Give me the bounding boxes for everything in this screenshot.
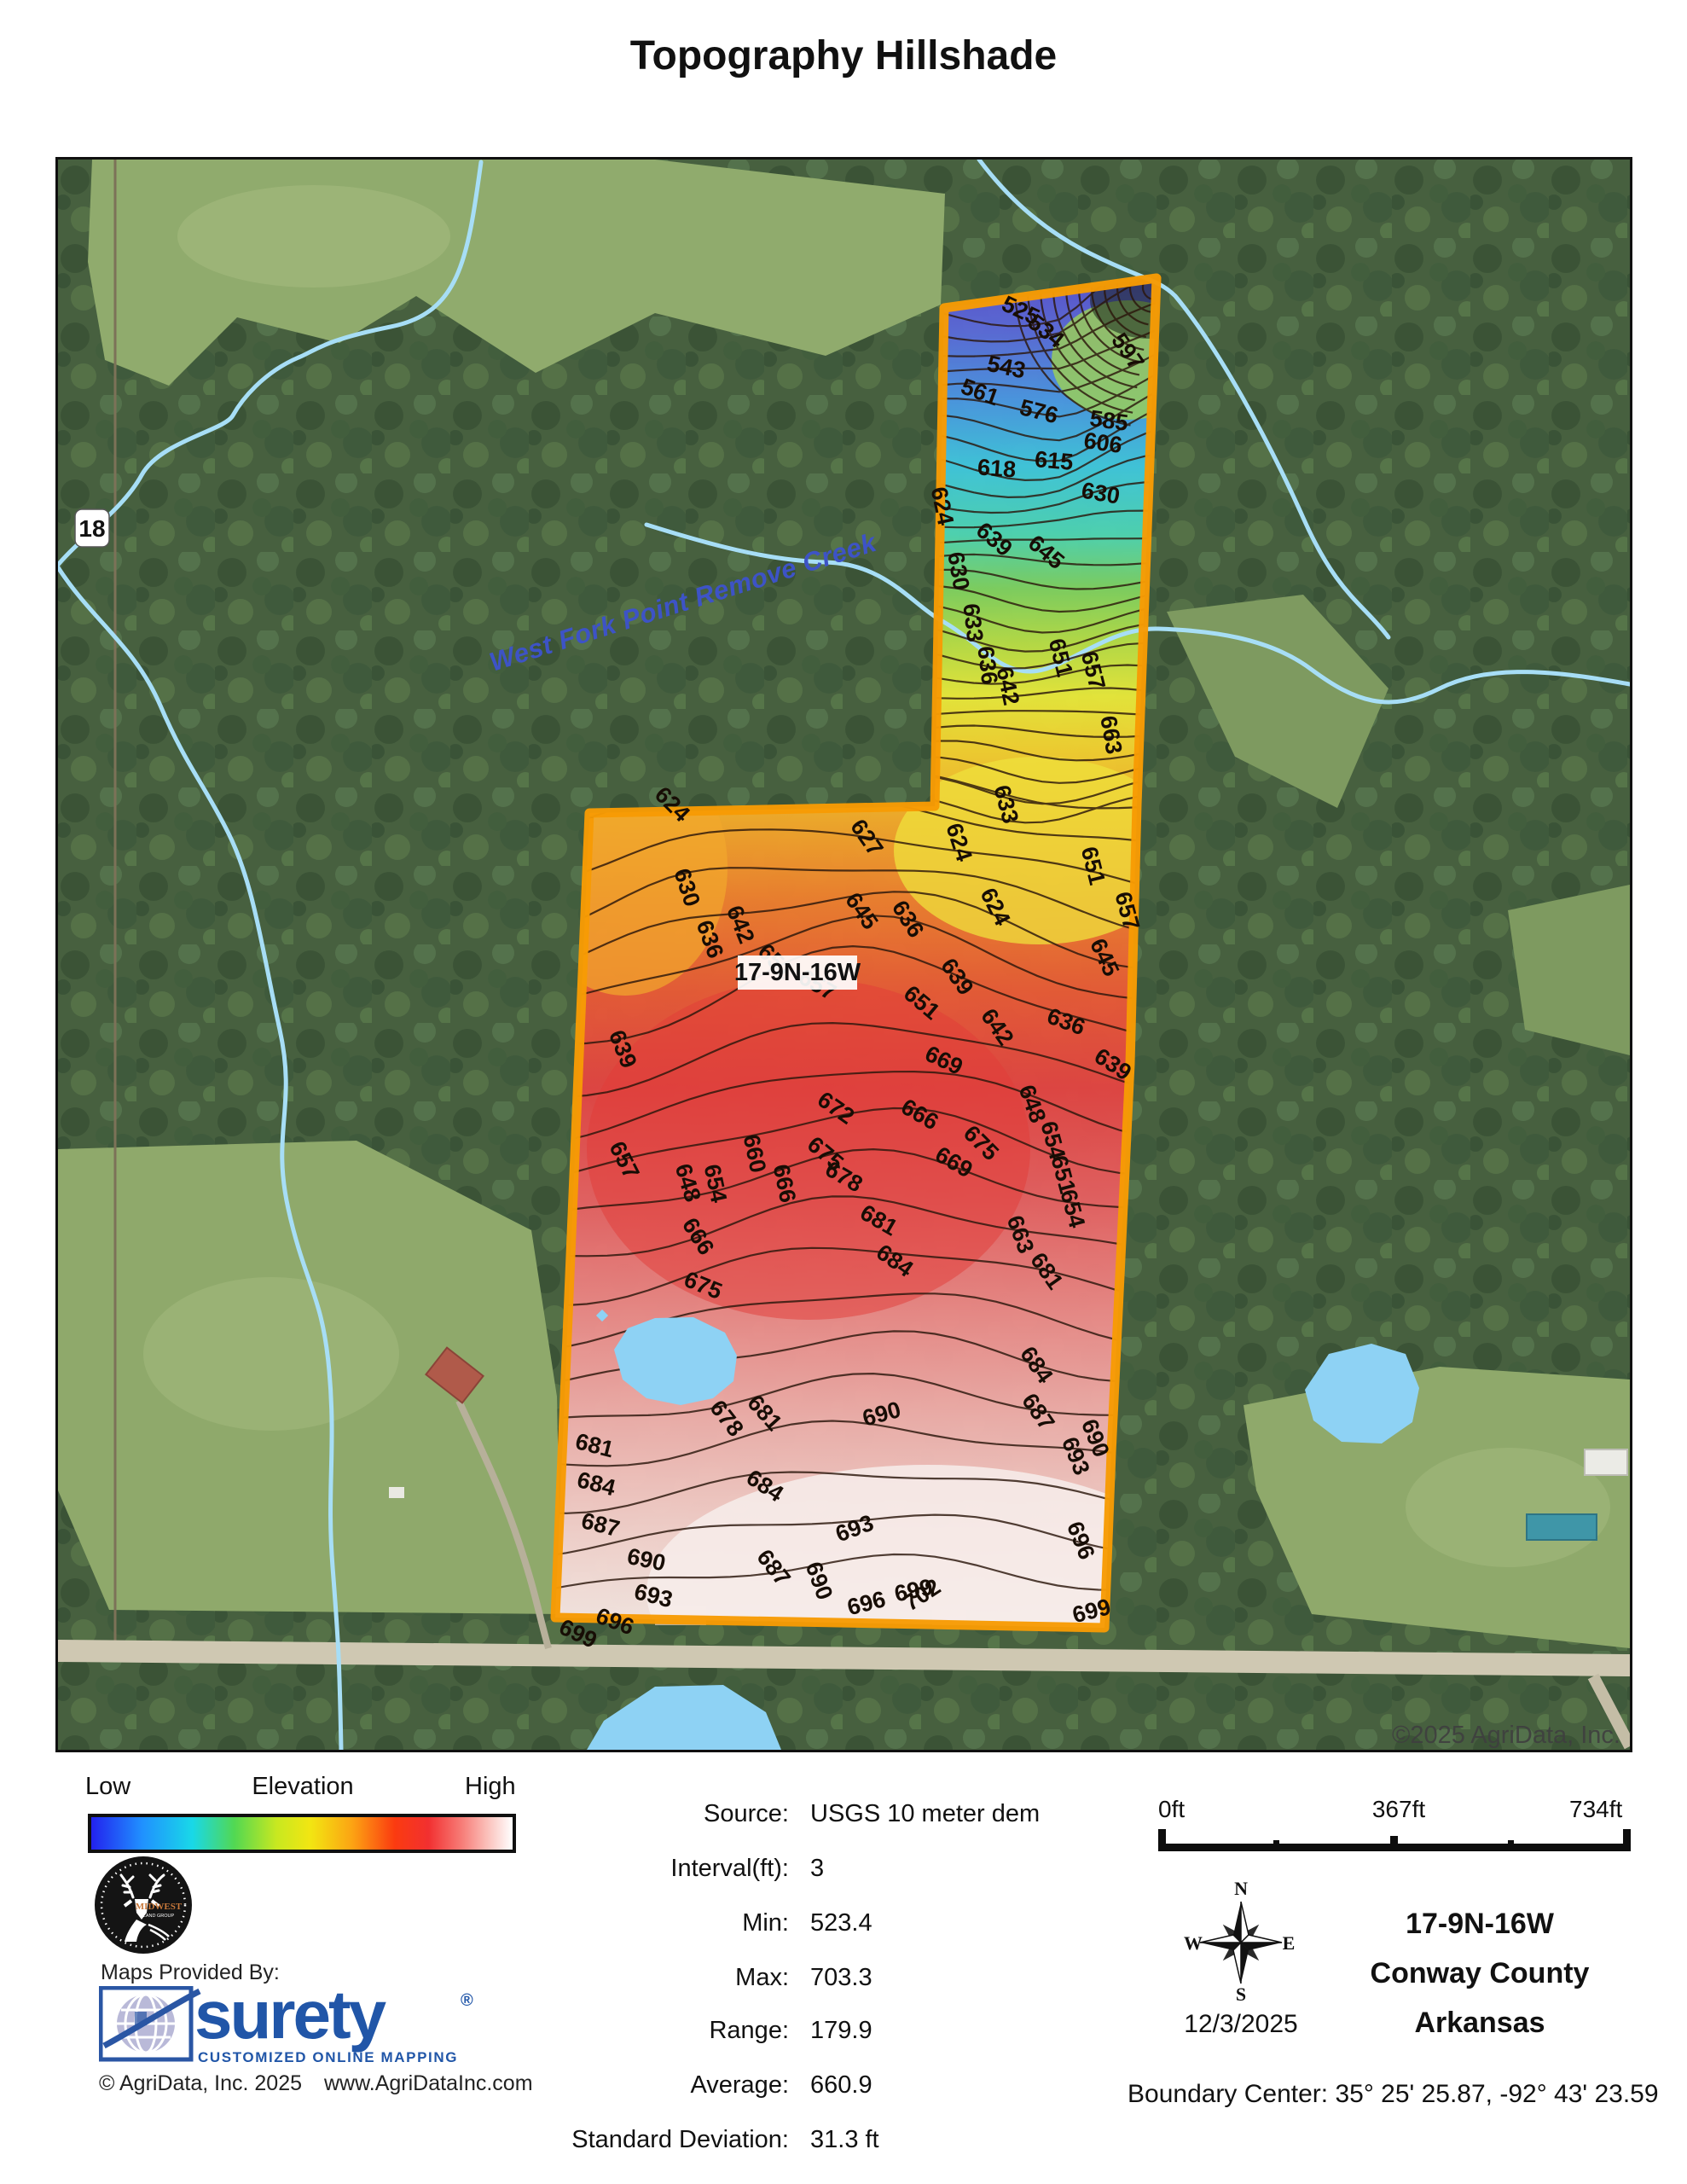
parcel-id-label: 17-9N-16W: [734, 955, 861, 990]
location-county: Conway County: [1326, 1949, 1633, 1998]
compass-rose: N S W E: [1184, 1879, 1298, 2007]
stat-stddev: Standard Deviation:31.3 ft: [529, 2126, 1237, 2158]
compass-s: S: [1236, 1984, 1246, 2005]
stat-source: Source:USGS 10 meter dem: [529, 1800, 1237, 1833]
deer-logo-subtitle: LAND GROUP: [143, 1914, 175, 1919]
svg-text:18: 18: [78, 515, 105, 542]
stat-max: Max:703.3: [529, 1964, 1237, 1996]
deer-logo-title: MIDWEST: [136, 1902, 183, 1912]
contour-elevation-label: 633: [958, 602, 988, 643]
contour-elevation-label: 615: [1034, 446, 1075, 475]
map-frame: 5255345435615765855976066156186306246306…: [55, 157, 1632, 1752]
midwest-land-group-logo: MIDWEST LAND GROUP: [92, 1853, 194, 1957]
elevation-gradient-bar: [88, 1814, 516, 1853]
legend-high: High: [465, 1773, 516, 1801]
location-state: Arkansas: [1326, 1998, 1633, 2047]
page-title: Topography Hillshade: [0, 32, 1687, 79]
route-shield: 18: [75, 509, 109, 547]
svg-text:17-9N-16W: 17-9N-16W: [734, 959, 861, 986]
stat-min: Min:523.4: [529, 1909, 1237, 1942]
location-block: 17-9N-16W Conway County Arkansas: [1326, 1899, 1633, 2047]
surety-wordmark: surety: [194, 1976, 384, 2054]
legend-title: Elevation: [205, 1773, 401, 1801]
location-trs: 17-9N-16W: [1326, 1899, 1633, 1949]
compass-e: E: [1283, 1932, 1296, 1954]
map-copyright: ©2025 AgriData, Inc.: [1392, 1722, 1620, 1749]
scalebar: [1158, 1829, 1631, 1851]
stat-interval: Interval(ft):3: [529, 1855, 1237, 1887]
topography-hillshade-map: 5255345435615765855976066156186306246306…: [58, 160, 1630, 1750]
page: Topography Hillshade: [0, 0, 1687, 2184]
compass-w: W: [1184, 1932, 1203, 1954]
agridata-copyright: © AgriData, Inc. 2025: [99, 2071, 302, 2096]
stat-range: Range:179.9: [529, 2017, 1237, 2049]
map-date: 12/3/2025: [1164, 2010, 1318, 2039]
registered-mark: ®: [461, 1991, 473, 2011]
scalebar-end: 734ft: [1569, 1796, 1622, 1823]
boundary-center: Boundary Center: 35° 25' 25.87, -92° 43'…: [1128, 2080, 1644, 2109]
contour-elevation-label: 618: [977, 454, 1017, 482]
legend-low: Low: [85, 1773, 130, 1801]
agridata-website: www.AgriDataInc.com: [324, 2071, 533, 2096]
contour-elevation-label: 606: [1082, 427, 1124, 458]
scalebar-mid: 367ft: [1330, 1796, 1467, 1823]
scalebar-start: 0ft: [1158, 1796, 1185, 1823]
surety-tagline: CUSTOMIZED ONLINE MAPPING: [198, 2049, 458, 2066]
compass-n: N: [1234, 1879, 1248, 1899]
